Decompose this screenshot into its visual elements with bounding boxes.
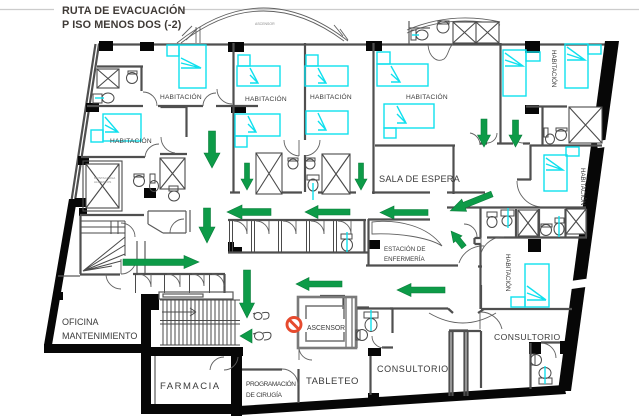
svg-text:HABITACIÓN: HABITACIÓN (579, 168, 586, 205)
svg-text:HABITACIÓN: HABITACIÓN (310, 92, 352, 101)
svg-text:TABLETEO: TABLETEO (306, 376, 359, 387)
svg-text:MANTENIMIENTO: MANTENIMIENTO (62, 331, 137, 341)
svg-text:PROGRAMACIÓN: PROGRAMACIÓN (246, 379, 296, 388)
svg-text:ENFERMERÍA: ENFERMERÍA (384, 256, 425, 263)
svg-text:DE CIRUGÍA: DE CIRUGÍA (246, 390, 283, 399)
svg-text:HABITACIÓN: HABITACIÓN (160, 92, 202, 101)
svg-text:SALA DE ESPERA: SALA DE ESPERA (379, 174, 461, 184)
svg-text:HABITACIÓN: HABITACIÓN (110, 136, 152, 145)
svg-text:ALIMENTOS: ALIMENTOS (94, 180, 111, 184)
svg-text:HABITACIÓN: HABITACIÓN (245, 94, 287, 103)
svg-text:OFICINA: OFICINA (62, 317, 99, 327)
svg-text:HABITACIÓN: HABITACIÓN (406, 92, 448, 101)
svg-text:ASCENSOR: ASCENSOR (307, 323, 346, 332)
svg-text:RUTA DE EVACUACIÓN: RUTA DE EVACUACIÓN (62, 4, 185, 17)
svg-text:CONSULTORIO: CONSULTORIO (377, 364, 449, 374)
svg-text:CONSULTORIO: CONSULTORIO (494, 332, 561, 342)
svg-text:HABITACIÓN: HABITACIÓN (504, 254, 511, 291)
svg-text:FARMACIA: FARMACIA (160, 381, 221, 392)
svg-text:ESTACIÓN DE: ESTACIÓN DE (384, 246, 425, 253)
svg-text:ASCENSOR: ASCENSOR (255, 22, 275, 26)
svg-text:P ISO MENOS DOS (-2): P ISO MENOS DOS (-2) (62, 19, 182, 31)
svg-text:HABITACIÓN: HABITACIÓN (550, 50, 557, 87)
